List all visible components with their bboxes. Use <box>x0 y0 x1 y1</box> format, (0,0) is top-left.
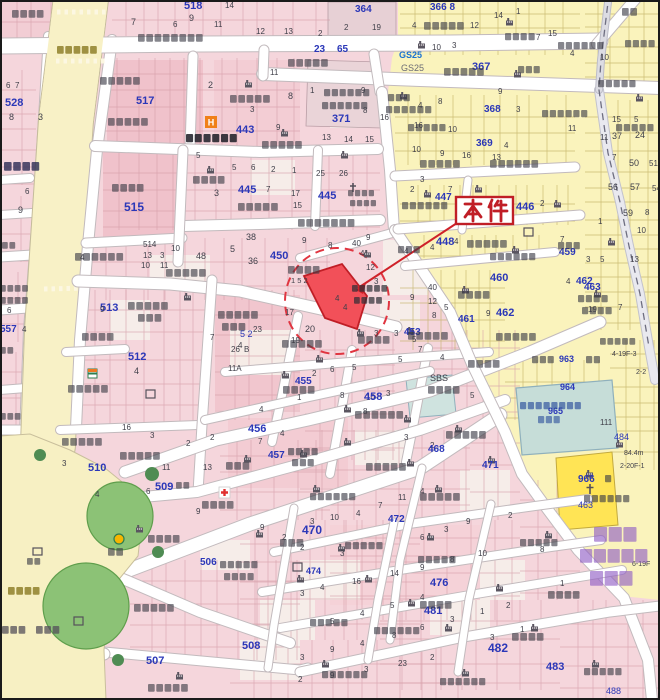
svg-text:471: 471 <box>482 460 499 471</box>
svg-text:57: 57 <box>630 182 640 192</box>
svg-text:56: 56 <box>608 182 618 192</box>
svg-text:482: 482 <box>488 641 508 655</box>
svg-text:463: 463 <box>584 282 601 293</box>
svg-text:7: 7 <box>536 33 541 42</box>
svg-text:8: 8 <box>340 391 345 400</box>
svg-text:4: 4 <box>22 325 27 334</box>
svg-text:963: 963 <box>559 354 574 364</box>
svg-text:3: 3 <box>38 112 43 122</box>
svg-text:3: 3 <box>404 433 409 442</box>
svg-text:50: 50 <box>629 158 639 168</box>
svg-text:36: 36 <box>248 256 258 266</box>
svg-text:4: 4 <box>134 366 139 376</box>
svg-text:25: 25 <box>316 169 325 178</box>
svg-text:5: 5 <box>444 303 449 312</box>
svg-text:12: 12 <box>256 27 265 36</box>
svg-text:16: 16 <box>380 113 389 122</box>
svg-text:6: 6 <box>420 623 425 632</box>
svg-text:51: 51 <box>649 159 658 168</box>
svg-text:2: 2 <box>540 199 545 208</box>
svg-text:11: 11 <box>160 261 169 270</box>
svg-text:3: 3 <box>300 653 305 662</box>
svg-text:368: 368 <box>484 104 501 115</box>
svg-text:3: 3 <box>340 549 345 558</box>
svg-text:5: 5 <box>600 255 605 264</box>
svg-text:6: 6 <box>146 487 151 496</box>
svg-text:470: 470 <box>302 523 322 537</box>
svg-text:16: 16 <box>122 423 131 432</box>
svg-text:1: 1 <box>292 166 297 175</box>
svg-text:1: 1 <box>560 579 565 588</box>
svg-text:4: 4 <box>440 353 445 362</box>
svg-text:1: 1 <box>297 393 302 402</box>
svg-text:10: 10 <box>478 549 487 558</box>
svg-text:7: 7 <box>15 81 20 90</box>
svg-text:9: 9 <box>196 507 201 516</box>
svg-text:13: 13 <box>322 133 331 142</box>
svg-text:11: 11 <box>270 68 279 77</box>
svg-text:2: 2 <box>298 675 303 684</box>
svg-text:9: 9 <box>361 86 366 95</box>
svg-text:445: 445 <box>318 190 336 202</box>
svg-text:456: 456 <box>248 423 266 435</box>
svg-text:10: 10 <box>448 125 457 134</box>
svg-text:GS25: GS25 <box>399 50 422 60</box>
svg-text:14: 14 <box>390 569 399 578</box>
svg-text:4: 4 <box>343 303 348 312</box>
svg-text:468: 468 <box>428 444 445 455</box>
svg-text:4: 4 <box>95 490 100 499</box>
svg-text:2-2: 2-2 <box>636 369 646 376</box>
svg-text:10: 10 <box>330 513 339 522</box>
svg-text:510: 510 <box>88 462 106 474</box>
svg-text:15: 15 <box>293 201 302 210</box>
svg-text:8: 8 <box>540 545 545 554</box>
svg-text:509: 509 <box>155 481 173 493</box>
svg-text:6: 6 <box>7 306 12 315</box>
svg-text:10: 10 <box>637 226 646 235</box>
svg-text:6: 6 <box>420 533 425 542</box>
svg-text:9: 9 <box>189 13 194 23</box>
svg-text:9: 9 <box>466 517 471 526</box>
svg-text:9: 9 <box>366 233 371 242</box>
svg-text:4: 4 <box>335 294 340 303</box>
svg-text:4: 4 <box>80 253 85 262</box>
svg-text:7: 7 <box>210 333 215 342</box>
svg-text:10: 10 <box>141 261 150 270</box>
svg-text:2: 2 <box>312 369 317 378</box>
svg-text:14: 14 <box>494 11 503 20</box>
svg-text:5: 5 <box>232 163 237 172</box>
svg-text:3: 3 <box>420 175 425 184</box>
svg-text:4: 4 <box>570 49 575 58</box>
svg-text:4: 4 <box>412 21 417 30</box>
svg-text:3: 3 <box>516 105 521 114</box>
svg-text:3: 3 <box>586 255 591 264</box>
svg-text:17: 17 <box>291 189 300 198</box>
svg-text:9: 9 <box>276 123 281 132</box>
svg-text:13: 13 <box>143 251 152 260</box>
svg-text:4: 4 <box>320 583 325 592</box>
svg-text:5: 5 <box>352 363 357 372</box>
svg-text:24: 24 <box>635 130 645 140</box>
svg-text:16: 16 <box>462 151 471 160</box>
svg-text:528: 528 <box>5 97 23 109</box>
svg-text:6: 6 <box>251 163 256 172</box>
svg-text:17: 17 <box>285 308 294 317</box>
svg-text:2: 2 <box>210 433 215 442</box>
svg-text:14: 14 <box>225 1 234 10</box>
svg-text:40: 40 <box>352 239 361 248</box>
svg-text:11: 11 <box>600 133 609 142</box>
svg-text:10: 10 <box>412 145 421 154</box>
svg-text:9: 9 <box>498 87 503 96</box>
svg-text:20: 20 <box>305 324 315 334</box>
svg-text:371: 371 <box>332 113 350 125</box>
svg-text:446: 446 <box>516 201 534 213</box>
svg-text:507: 507 <box>146 655 164 667</box>
svg-text:512: 512 <box>128 351 146 363</box>
svg-text:4: 4 <box>238 341 243 350</box>
svg-text:447: 447 <box>435 192 452 203</box>
svg-text:3: 3 <box>150 431 155 440</box>
svg-text:12: 12 <box>470 21 479 30</box>
svg-text:5: 5 <box>390 601 395 610</box>
svg-text:10: 10 <box>171 244 180 253</box>
svg-text:517: 517 <box>136 95 154 107</box>
svg-text:1: 1 <box>598 217 603 226</box>
svg-text:2: 2 <box>508 511 513 520</box>
svg-text:1 5 2: 1 5 2 <box>291 276 308 285</box>
svg-text:4: 4 <box>360 609 365 618</box>
svg-text:366 8: 366 8 <box>430 2 455 13</box>
svg-text:9: 9 <box>260 523 265 532</box>
svg-text:12: 12 <box>366 263 375 272</box>
svg-text:514: 514 <box>143 240 157 249</box>
svg-text:7: 7 <box>378 501 383 510</box>
svg-text:457: 457 <box>268 450 285 461</box>
svg-text:16: 16 <box>352 577 361 586</box>
svg-text:11: 11 <box>214 20 223 29</box>
svg-text:48: 48 <box>196 251 206 261</box>
svg-text:14: 14 <box>344 135 353 144</box>
svg-text:13: 13 <box>630 255 639 264</box>
svg-text:1: 1 <box>310 86 315 95</box>
svg-text:2: 2 <box>318 29 323 38</box>
svg-text:10: 10 <box>432 43 441 52</box>
svg-text:8: 8 <box>9 112 14 122</box>
svg-text:455: 455 <box>295 376 312 387</box>
svg-text:3: 3 <box>444 525 449 534</box>
svg-text:11: 11 <box>398 493 407 502</box>
svg-text:7: 7 <box>612 153 617 162</box>
svg-text:3: 3 <box>62 459 67 468</box>
svg-text:445: 445 <box>238 184 256 196</box>
svg-text:38: 38 <box>246 232 256 242</box>
svg-text:3: 3 <box>386 389 391 398</box>
svg-text:6: 6 <box>330 365 335 374</box>
svg-text:515: 515 <box>124 200 144 214</box>
svg-text:5 2: 5 2 <box>240 329 253 339</box>
svg-text:3: 3 <box>452 41 457 50</box>
svg-text:6: 6 <box>25 187 30 196</box>
svg-text:458: 458 <box>364 391 382 403</box>
svg-text:2: 2 <box>430 653 435 662</box>
svg-text:4: 4 <box>454 237 459 246</box>
svg-text:H: H <box>208 118 215 128</box>
svg-text:508: 508 <box>242 640 260 652</box>
svg-text:84.4m: 84.4m <box>624 450 644 457</box>
svg-text:15: 15 <box>365 135 374 144</box>
svg-text:3: 3 <box>300 589 305 598</box>
svg-text:111: 111 <box>600 418 613 427</box>
svg-text:2: 2 <box>410 185 415 194</box>
svg-text:15: 15 <box>548 29 557 38</box>
svg-text:966: 966 <box>578 474 595 485</box>
svg-text:7: 7 <box>618 303 623 312</box>
svg-text:7: 7 <box>266 185 271 194</box>
svg-text:3: 3 <box>364 665 369 674</box>
svg-text:9: 9 <box>18 205 23 215</box>
svg-text:2: 2 <box>271 165 276 174</box>
svg-text:964: 964 <box>560 382 575 392</box>
svg-text:472: 472 <box>388 514 405 525</box>
svg-text:3: 3 <box>250 105 255 114</box>
svg-text:4: 4 <box>420 593 425 602</box>
svg-text:8: 8 <box>645 208 650 217</box>
svg-text:26: 26 <box>339 169 348 178</box>
svg-text:40: 40 <box>428 283 437 292</box>
svg-text:476: 476 <box>430 577 448 589</box>
svg-text:8: 8 <box>328 241 333 250</box>
svg-text:4: 4 <box>566 277 571 286</box>
svg-text:5: 5 <box>470 391 475 400</box>
svg-text:2: 2 <box>344 23 349 32</box>
svg-text:B: B <box>244 345 249 354</box>
svg-text:4-19F-3: 4-19F-3 <box>612 351 637 358</box>
svg-text:448: 448 <box>436 236 454 248</box>
svg-text:461: 461 <box>458 314 475 325</box>
svg-text:364: 364 <box>355 4 372 15</box>
svg-text:3: 3 <box>214 188 219 198</box>
svg-text:1: 1 <box>516 7 521 16</box>
svg-text:8: 8 <box>432 311 437 320</box>
svg-text:9: 9 <box>440 149 445 158</box>
svg-text:6: 6 <box>6 81 11 90</box>
svg-text:4: 4 <box>504 141 509 150</box>
svg-text:557: 557 <box>0 324 17 335</box>
svg-text:13: 13 <box>284 27 293 36</box>
svg-text:4: 4 <box>430 243 435 252</box>
svg-text:7: 7 <box>418 345 423 354</box>
svg-text:7: 7 <box>131 17 136 27</box>
svg-text:8: 8 <box>438 97 443 106</box>
svg-text:7: 7 <box>258 437 263 446</box>
svg-text:10: 10 <box>600 53 609 62</box>
svg-text:462: 462 <box>496 307 514 319</box>
svg-text:4: 4 <box>360 249 365 258</box>
svg-text:19: 19 <box>372 23 381 32</box>
svg-text:5: 5 <box>634 115 639 124</box>
svg-text:6: 6 <box>173 20 178 29</box>
svg-text:12: 12 <box>428 297 437 306</box>
svg-text:488: 488 <box>606 686 621 696</box>
svg-text:GS25: GS25 <box>401 63 424 73</box>
svg-text:2-20F-1: 2-20F-1 <box>620 463 645 470</box>
svg-text:13: 13 <box>203 463 212 472</box>
svg-text:450: 450 <box>270 250 288 262</box>
svg-text:9: 9 <box>100 305 105 314</box>
svg-text:SBS: SBS <box>430 373 448 383</box>
svg-text:9: 9 <box>410 293 415 302</box>
svg-text:4: 4 <box>356 509 361 518</box>
svg-text:5: 5 <box>398 355 403 364</box>
svg-text:11: 11 <box>568 124 577 133</box>
svg-text:5: 5 <box>196 151 201 160</box>
svg-text:23: 23 <box>314 44 326 55</box>
svg-text:11: 11 <box>162 463 171 472</box>
svg-text:15: 15 <box>612 115 621 124</box>
svg-text:65: 65 <box>337 44 349 55</box>
svg-text:2: 2 <box>186 439 191 448</box>
svg-text:59: 59 <box>623 208 633 218</box>
svg-text:2: 2 <box>506 601 511 610</box>
svg-text:5: 5 <box>230 244 235 254</box>
svg-text:4: 4 <box>259 405 264 414</box>
svg-text:483: 483 <box>546 661 564 673</box>
svg-text:1: 1 <box>520 625 525 634</box>
svg-text:8: 8 <box>288 91 293 101</box>
svg-text:443: 443 <box>236 124 254 136</box>
svg-text:8: 8 <box>363 106 368 115</box>
svg-text:4: 4 <box>360 639 365 648</box>
svg-text:4: 4 <box>280 429 285 438</box>
svg-text:37: 37 <box>612 131 622 141</box>
svg-text:460: 460 <box>490 272 508 284</box>
svg-text:474: 474 <box>306 566 321 576</box>
svg-text:23: 23 <box>253 325 262 334</box>
svg-text:484: 484 <box>614 432 629 442</box>
svg-text:9: 9 <box>330 671 335 680</box>
svg-text:3: 3 <box>160 251 165 260</box>
svg-text:3: 3 <box>374 277 379 286</box>
svg-text:9: 9 <box>330 645 335 654</box>
svg-text:3: 3 <box>450 615 455 624</box>
svg-text:506: 506 <box>200 557 217 568</box>
svg-text:3: 3 <box>394 329 399 338</box>
svg-text:2: 2 <box>208 80 213 90</box>
svg-text:9: 9 <box>420 563 425 572</box>
svg-text:9: 9 <box>486 309 491 318</box>
svg-text:9: 9 <box>302 236 307 245</box>
svg-text:23: 23 <box>398 659 407 668</box>
svg-text:1: 1 <box>480 607 485 616</box>
svg-text:11A: 11A <box>228 364 242 373</box>
svg-text:369: 369 <box>476 138 493 149</box>
